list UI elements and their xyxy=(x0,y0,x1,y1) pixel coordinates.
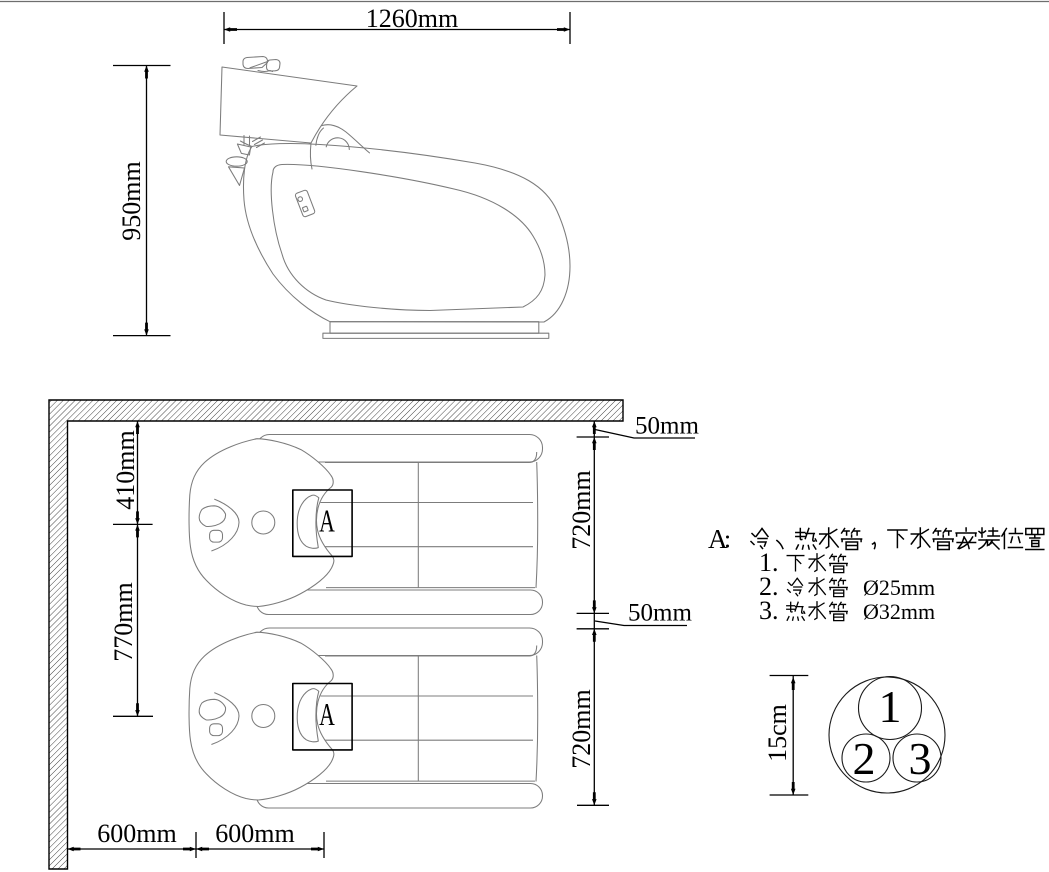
svg-text:1: 1 xyxy=(879,681,902,732)
svg-text:410mm: 410mm xyxy=(111,430,140,509)
svg-text:50mm: 50mm xyxy=(628,600,692,627)
svg-text:2: 2 xyxy=(853,733,876,784)
svg-text:1260mm: 1260mm xyxy=(366,4,458,33)
svg-text:600mm: 600mm xyxy=(97,819,176,848)
svg-text:A: A xyxy=(708,524,728,554)
svg-text:720mm: 720mm xyxy=(567,689,596,768)
svg-text:770mm: 770mm xyxy=(109,582,138,661)
svg-text:600mm: 600mm xyxy=(215,819,294,848)
svg-text:3: 3 xyxy=(909,733,932,784)
svg-text:Ø25mm: Ø25mm xyxy=(863,575,935,600)
svg-text:720mm: 720mm xyxy=(567,470,596,549)
svg-text:3.: 3. xyxy=(759,596,779,625)
svg-text:Ø32mm: Ø32mm xyxy=(863,599,935,624)
svg-text:950mm: 950mm xyxy=(117,161,146,240)
svg-text:15cm: 15cm xyxy=(763,704,792,762)
svg-text:50mm: 50mm xyxy=(635,413,699,440)
